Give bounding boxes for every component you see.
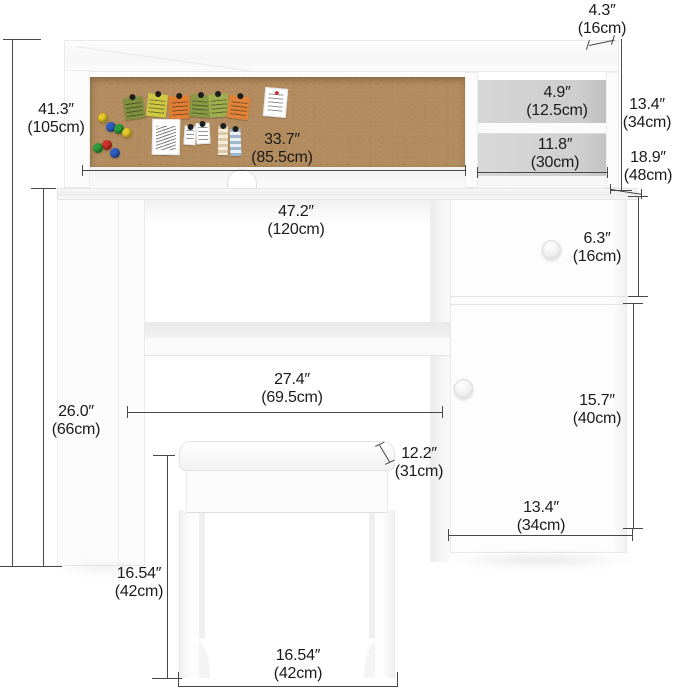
doodle-marks (156, 126, 176, 150)
tick (477, 167, 478, 178)
note-scribble (211, 100, 228, 115)
dim-label-cabinet-width: 13.4″ (34cm) (496, 499, 586, 535)
dim-cm: (48cm) (618, 167, 678, 185)
dim-inches: 18.9″ (618, 149, 678, 167)
tick (610, 184, 611, 194)
dim-line-shelf-width (127, 412, 442, 413)
dim-inches: 16.54″ (94, 565, 184, 583)
tick (127, 406, 128, 418)
dim-inches: 12.2″ (374, 445, 464, 463)
sticky-note (146, 93, 168, 118)
dim-line-cabinet-width (448, 535, 633, 536)
dim-inches: 27.4″ (247, 371, 337, 389)
note-scribble (149, 100, 166, 115)
tick (632, 529, 633, 541)
tick (82, 165, 83, 176)
door-knob (454, 379, 473, 398)
dim-inches: 16.54″ (253, 647, 343, 665)
note-scribble (230, 102, 248, 117)
dim-cm: (66cm) (31, 421, 121, 439)
dim-inches: 33.7″ (237, 131, 327, 149)
tick (623, 303, 643, 304)
stool-seat-frame (186, 469, 388, 513)
dim-line-stool-width (178, 686, 397, 687)
tag-text (198, 127, 208, 141)
dim-label-stool-depth: 12.2″ (31cm) (374, 445, 464, 481)
tick (31, 188, 56, 189)
dim-label-cubby-width: 11.8″ (30cm) (510, 136, 600, 172)
cabinet-floor-shadow (440, 553, 640, 567)
note-scribble (192, 101, 209, 115)
dim-inches: 13.4″ (496, 499, 586, 517)
desk-surface (57, 188, 637, 200)
note-pin-icon (129, 94, 136, 101)
dim-label-desk-depth: 18.9″ (48cm) (618, 149, 678, 185)
note-scribble (171, 102, 188, 116)
dim-inches: 41.3″ (11, 101, 101, 119)
tick (628, 196, 648, 197)
dim-inches: 13.4″ (613, 96, 679, 114)
tick (397, 672, 398, 687)
tick (442, 406, 443, 418)
tick (448, 529, 449, 541)
push-pin (110, 148, 120, 158)
dim-cm: (34cm) (613, 114, 679, 132)
desk-left-panel-edge (118, 200, 119, 566)
note-scribble (126, 102, 143, 117)
dim-label-hutch-height: 13.4″ (34cm) (613, 96, 679, 132)
dim-cm: (85.5cm) (237, 149, 327, 167)
push-pin (93, 143, 103, 153)
dim-inches: 47.2″ (251, 203, 341, 221)
cubby-shelf (478, 123, 606, 134)
dim-cm: (120cm) (251, 221, 341, 239)
dim-cm: (42cm) (94, 583, 184, 601)
floor-line (0, 566, 62, 567)
note-pin-icon (198, 92, 205, 99)
dim-label-total-height: 41.3″ (105cm) (11, 101, 101, 137)
fabric-swatch (218, 126, 229, 155)
dim-cm: (12.5cm) (512, 102, 602, 120)
product-dimension-diagram: 4.3″ (16cm) 41.3″ (105cm) 33.7″ (85.5cm)… (0, 0, 679, 694)
tick (153, 455, 175, 456)
sticky-note (123, 96, 146, 121)
dim-label-corkboard-width: 33.7″ (85.5cm) (237, 131, 327, 167)
dim-cm: (16cm) (552, 248, 642, 266)
dim-cm: (30cm) (510, 154, 600, 172)
dim-label-hutch-top-depth: 4.3″ (16cm) (557, 2, 647, 38)
desk-shelf-top (145, 322, 450, 338)
note-pin-icon (175, 93, 181, 99)
dim-line-cubby-width (477, 172, 608, 173)
tick (3, 39, 41, 40)
knee-space-right-wall (430, 200, 450, 562)
paper-note (263, 87, 288, 118)
dim-line-corkboard-width (82, 170, 466, 171)
desk-shelf-front (145, 338, 450, 356)
tick (623, 528, 643, 529)
dim-inches: 11.8″ (510, 136, 600, 154)
dim-inches: 4.3″ (557, 2, 647, 20)
dim-inches: 26.0″ (31, 403, 121, 421)
tag-pin-icon (199, 121, 205, 127)
paper-tag (195, 123, 210, 145)
dim-label-desk-width: 47.2″ (120cm) (251, 203, 341, 239)
push-pin (122, 128, 132, 138)
dim-label-drawer-height: 6.3″ (16cm) (552, 230, 642, 266)
note-pin-icon (215, 91, 222, 98)
dim-label-stool-height: 16.54″ (42cm) (94, 565, 184, 601)
note-pin-icon (237, 93, 244, 100)
dim-cm: (42cm) (253, 665, 343, 683)
note-text (267, 93, 285, 113)
dim-label-desk-height: 26.0″ (66cm) (31, 403, 121, 439)
dim-inches: 6.3″ (552, 230, 642, 248)
dim-cm: (16cm) (557, 20, 647, 38)
dim-cm: (31cm) (374, 463, 464, 481)
dim-cm: (34cm) (496, 517, 586, 535)
dim-label-stool-width: 16.54″ (42cm) (253, 647, 343, 683)
sticky-note (227, 95, 251, 120)
dim-inches: 15.7″ (552, 392, 642, 410)
sticky-note (168, 95, 191, 119)
dim-inches: 4.9″ (512, 84, 602, 102)
dim-cm: (69.5cm) (247, 389, 337, 407)
tick (465, 165, 466, 176)
tick (628, 296, 648, 297)
dim-line-desk-height (43, 188, 44, 566)
drawer-bottom-edge (450, 296, 627, 297)
tick (607, 167, 608, 178)
dim-label-shelf-width: 27.4″ (69.5cm) (247, 371, 337, 407)
swatch-pin-icon (220, 123, 226, 129)
dim-label-cubby-height: 4.9″ (12.5cm) (512, 84, 602, 120)
stool-rear-leg-left (199, 513, 205, 638)
dim-cm: (105cm) (11, 119, 101, 137)
tick (641, 189, 642, 199)
tick (178, 672, 179, 687)
dim-label-door-height: 15.7″ (40cm) (552, 392, 642, 428)
door-top-edge (450, 304, 627, 305)
tag-text (186, 130, 194, 142)
stool-cushion (179, 441, 395, 471)
note-pin-icon (155, 91, 162, 98)
paper-doodle (152, 119, 181, 155)
dim-cm: (40cm) (552, 410, 642, 428)
stool-leg-right (375, 510, 395, 678)
paper-tag (183, 126, 196, 146)
desk-left-panel (57, 200, 145, 566)
cubby-bottom-rail (478, 176, 606, 188)
